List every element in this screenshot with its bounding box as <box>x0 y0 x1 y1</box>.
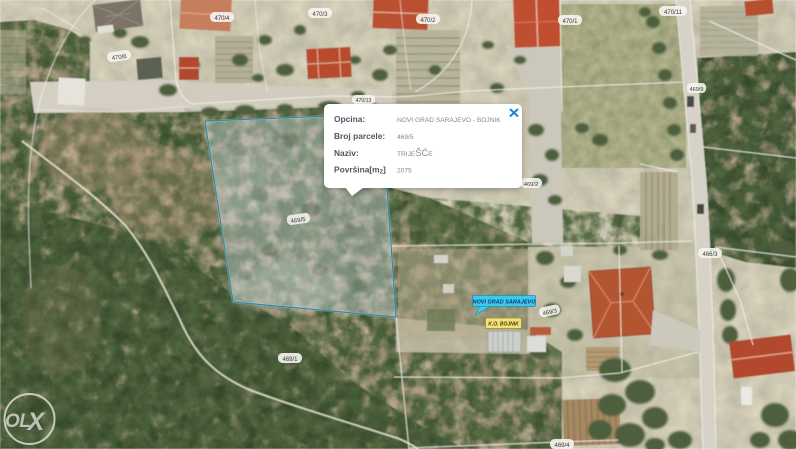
svg-text:469/2: 469/2 <box>524 182 539 188</box>
svg-text:470/11: 470/11 <box>664 10 683 16</box>
svg-text:2075: 2075 <box>397 168 412 175</box>
svg-text:470/3: 470/3 <box>312 12 328 18</box>
svg-text:NOVI GRAD SARAJEVO: NOVI GRAD SARAJEVO <box>473 300 537 306</box>
svg-text:Opcina:: Opcina: <box>334 114 365 124</box>
svg-text:X: X <box>26 408 46 436</box>
svg-text:NOVI GRAD SARAJEVO - BOJNIK: NOVI GRAD SARAJEVO - BOJNIK <box>397 117 501 124</box>
svg-text:469/9: 469/9 <box>690 87 704 93</box>
svg-text:470/2: 470/2 <box>420 18 436 24</box>
svg-text:K.O. BOJNIK: K.O. BOJNIK <box>488 322 519 328</box>
svg-text:466/3: 466/3 <box>702 252 718 258</box>
svg-text:469/1: 469/1 <box>282 357 298 363</box>
svg-text:Površina[m2]: Površina[m2] <box>334 165 386 176</box>
svg-text:Naziv:: Naziv: <box>334 148 359 158</box>
svg-text:Broj parcele:: Broj parcele: <box>334 131 385 141</box>
svg-text:469/4: 469/4 <box>554 443 570 449</box>
svg-text:470/4: 470/4 <box>214 16 230 22</box>
svg-text:470/13: 470/13 <box>356 98 372 104</box>
svg-text:469/5: 469/5 <box>397 134 414 141</box>
svg-text:470/1: 470/1 <box>562 19 578 25</box>
